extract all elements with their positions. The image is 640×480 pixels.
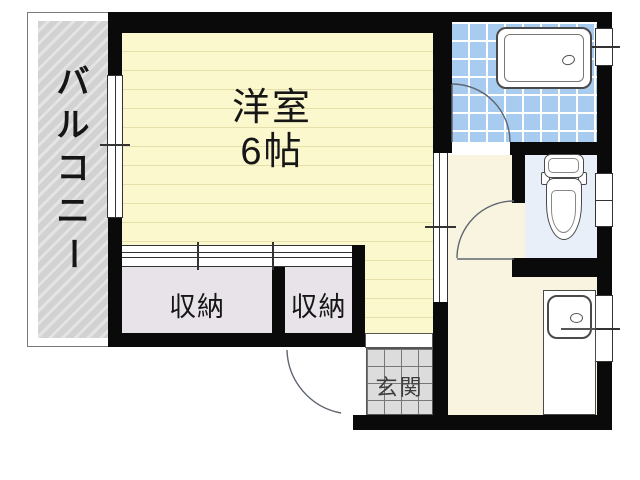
faucet-spout [561, 328, 595, 330]
wall [108, 218, 122, 347]
front-door-arc [287, 350, 341, 413]
wall [352, 245, 365, 333]
window-mullion [115, 146, 116, 217]
balcony-label: バ ル コ ニ ー [50, 60, 96, 275]
toilet-tank-lid [548, 158, 579, 173]
entrance-step [365, 333, 433, 348]
wall [512, 155, 525, 203]
sliding-door-tick [425, 226, 456, 228]
window [107, 75, 123, 145]
bathtub [496, 27, 592, 89]
closet-right-label: 収納 [285, 285, 352, 324]
balcony-char: バ [57, 63, 90, 100]
closet-sliding-door [122, 245, 352, 267]
window-tick [100, 144, 130, 146]
window-mullion [115, 76, 116, 144]
window [107, 145, 123, 218]
kitchen-counter [543, 290, 596, 415]
balcony-char: ニ [57, 192, 90, 229]
toilet-bowl-inner [551, 190, 576, 233]
floor-plan: バ ル コ ニ ー [0, 0, 640, 480]
wall [272, 267, 285, 333]
window [595, 173, 613, 227]
room-name: 洋室 [232, 87, 312, 129]
wall [597, 12, 612, 28]
wall [108, 12, 448, 33]
sliding-door-line [122, 257, 352, 258]
window-tick [592, 46, 620, 48]
entrance-label: 玄関 [366, 370, 433, 402]
wall [448, 12, 612, 22]
closet-left-label: 収納 [122, 285, 272, 324]
sliding-door-line [122, 252, 352, 253]
wall [433, 302, 448, 430]
sliding-door-tick [272, 242, 274, 270]
window-mullion [596, 200, 612, 201]
wall [433, 12, 452, 153]
wall [108, 12, 122, 75]
room-size: 6帖 [240, 131, 303, 173]
kitchen-sink [547, 295, 592, 339]
faucet-knob [570, 313, 583, 323]
western-room-floor-extension [365, 245, 433, 333]
balcony-char: ー [52, 237, 95, 270]
window-tick [592, 328, 620, 330]
wall [597, 227, 612, 295]
balcony-char: ル [57, 106, 90, 143]
balcony-char: コ [57, 149, 90, 186]
western-room-label: 洋室 6帖 [162, 86, 382, 174]
wall [353, 415, 612, 430]
wall [108, 333, 365, 347]
wall [597, 66, 612, 173]
toilet-tank [544, 154, 584, 178]
sliding-door-tick [197, 242, 199, 270]
